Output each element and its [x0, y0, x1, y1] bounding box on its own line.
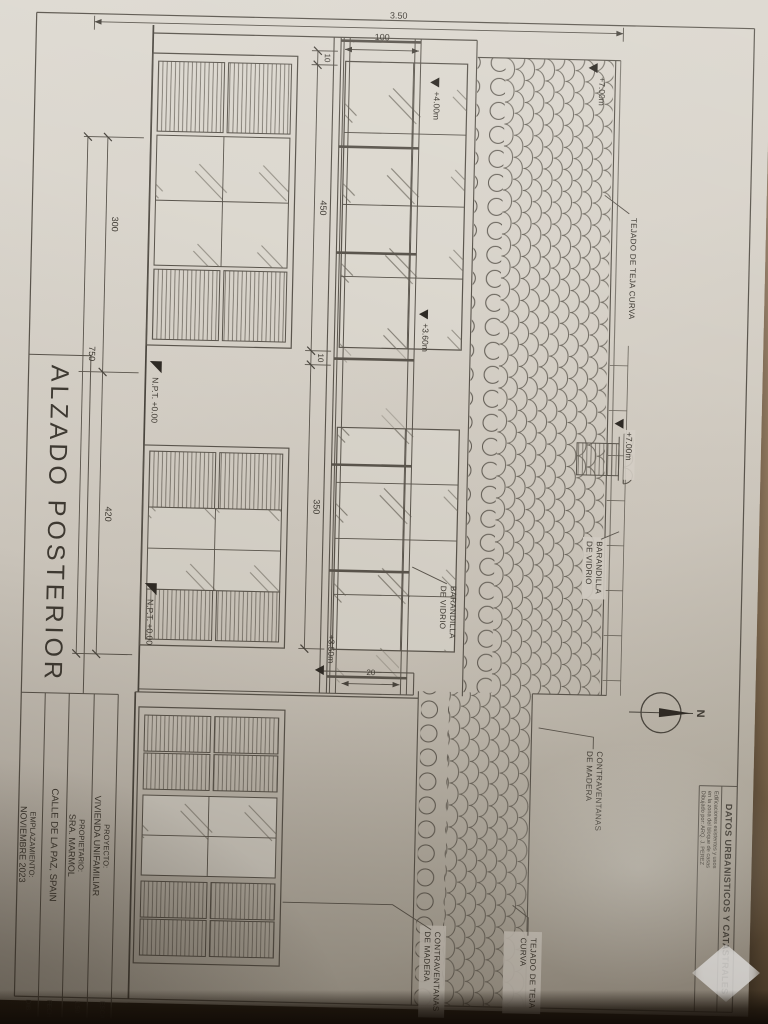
paper-sheet: ALZADO POSTERIOR PROYECTO: VIVIENDA UNIF… [0, 0, 768, 1017]
north-compass: N [629, 692, 707, 734]
bay-b [139, 445, 289, 648]
svg-text:N.P.T. +0.00: N.P.T. +0.00 [149, 377, 160, 423]
dim-low-left: 300 [110, 217, 120, 232]
svg-text:DIB.: DIB. [24, 999, 31, 1012]
dim-low-right: 420 [103, 507, 113, 522]
datos-line: Edificaciones existentes y usos [711, 791, 719, 869]
north-label: N [694, 710, 706, 718]
datos-box: DATOS URBANISTICOS Y CATASTRALES Edifica… [694, 786, 737, 1013]
project-label: PROYECTO: [101, 824, 111, 868]
shutter-panel [209, 921, 274, 958]
photo-of-drawing: ALZADO POSTERIOR PROYECTO: VIVIENDA UNIF… [0, 0, 768, 1024]
dim-wall-a: 10 [323, 53, 332, 63]
wing-ground-line [128, 692, 135, 999]
svg-text:BARANDILLA: BARANDILLA [594, 541, 604, 594]
level-350: +3.50m [326, 635, 337, 664]
drawing-sheet: ALZADO POSTERIOR PROYECTO: VIVIENDA UNIF… [0, 0, 767, 1024]
shutter-panel [144, 715, 211, 752]
svg-text:CURVA: CURVA [518, 938, 528, 967]
shutter-panel [210, 883, 275, 920]
svg-text:ESCALA: ESCALA [98, 1001, 106, 1024]
shutter-panel [146, 589, 213, 640]
shutter-panel [222, 271, 287, 342]
sheet-title: ALZADO POSTERIOR [39, 365, 74, 684]
svg-text:BARANDILLA: BARANDILLA [448, 586, 458, 639]
label-contraventanas-1: CONTRAVENTANAS DE MADERA [536, 728, 604, 831]
svg-text:TEJADO DE TEJA: TEJADO DE TEJA [527, 938, 538, 1009]
roof-tiles [491, 58, 613, 695]
level-roof: +7.00m [597, 77, 608, 106]
dim-wall-b: 10 [316, 353, 325, 363]
elevation-drawing: ALZADO POSTERIOR PROYECTO: VIVIENDA UNIF… [0, 0, 767, 1024]
svg-text:TEJADO DE TEJA CURVA: TEJADO DE TEJA CURVA [627, 218, 638, 320]
svg-text:DE VIDRIO: DE VIDRIO [438, 586, 448, 630]
shutter-panel [149, 451, 216, 508]
svg-text:DE MADERA: DE MADERA [584, 751, 594, 802]
svg-text:FECHA: FECHA [45, 1000, 53, 1023]
shutter-panel [214, 717, 279, 754]
owner-value: SRA. MARMOL [66, 814, 77, 877]
dim-overall-height: 3.50 [390, 10, 408, 20]
wing-windows [129, 692, 418, 969]
shutter-panel [157, 61, 225, 132]
dim-railing: 100 [375, 32, 390, 42]
svg-text:N.P.T. +0.00: N.P.T. +0.00 [144, 599, 155, 645]
shutter-panel [140, 881, 207, 918]
site-label: EMPLAZAMIENTO: [27, 811, 37, 877]
owner-label: PROPIETARIO: [76, 819, 86, 872]
svg-text:DE MADERA: DE MADERA [422, 931, 432, 982]
project-value: VIVIENDA UNIFAMILIAR [91, 796, 103, 897]
datos-heading: DATOS URBANISTICOS Y CATASTRALES [720, 804, 734, 995]
level-triangle [614, 419, 623, 429]
dim-bay-a: 450 [318, 200, 328, 215]
title-block: ALZADO POSTERIOR PROYECTO: VIVIENDA UNIF… [14, 354, 126, 1024]
dim-parapet: 20 [366, 668, 376, 677]
svg-text:1:50: 1:50 [73, 1000, 80, 1013]
north-needle [659, 708, 691, 718]
svg-text:CONTRAVENTANAS: CONTRAVENTANAS [593, 751, 604, 831]
shutter-panel [213, 755, 278, 792]
svg-text:CONTRAVENTANAS: CONTRAVENTANAS [431, 932, 442, 1012]
shutter-panel [152, 269, 220, 340]
npt-marker-1: N.P.T. +0.00 [148, 361, 161, 423]
level-chimney: +7.00m [624, 432, 635, 461]
site-value: NOVIEMBRE 2023 [17, 806, 29, 883]
shutter-panel [227, 63, 292, 134]
shutter-panel [216, 591, 280, 642]
label-barandilla-2: BARANDILLA DE VIDRIO [582, 531, 620, 600]
bay-a [146, 53, 298, 348]
dim-bay-b: 350 [311, 499, 321, 514]
main-roof [462, 40, 635, 699]
address-value: CALLE DE LA PAZ, SPAIN [47, 788, 61, 902]
dim-low-total: 750 [87, 346, 97, 361]
svg-text:DE VIDRIO: DE VIDRIO [584, 541, 594, 585]
level-360: +3.60m [420, 323, 431, 352]
level-400: +4.00m [431, 91, 442, 120]
title-block-edge-cells: ESCALA 1:50 FECHA DIB. [24, 999, 106, 1024]
shutter-panel [139, 919, 206, 956]
shutter-panel [143, 753, 210, 790]
rooftop-railing [602, 345, 628, 695]
shutter-panel [219, 453, 283, 510]
